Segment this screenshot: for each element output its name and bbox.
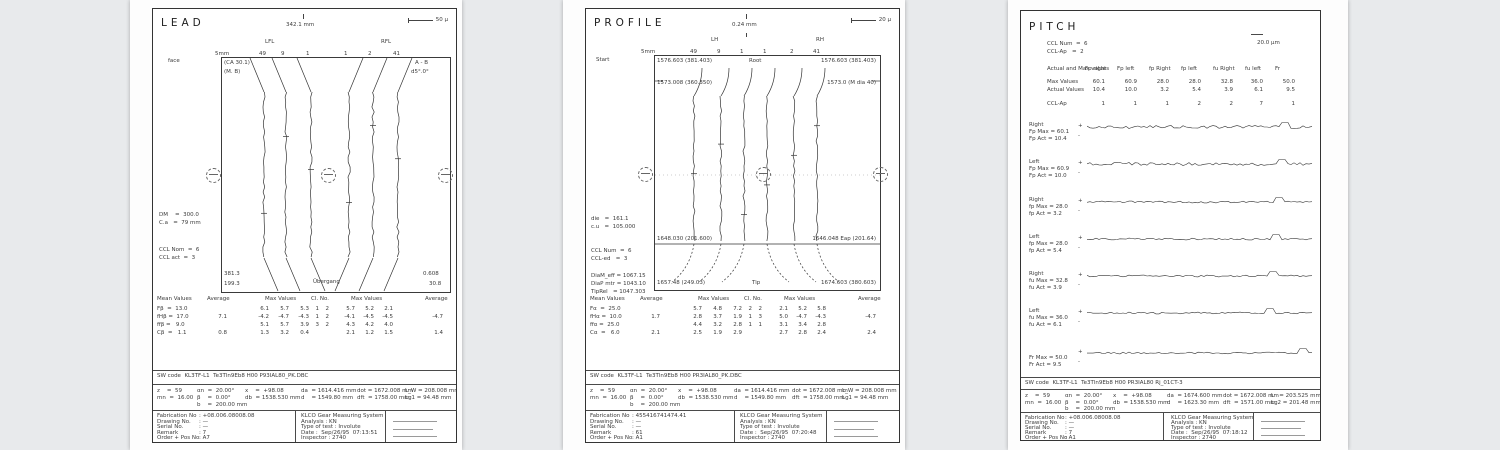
table-cell: 4.0 bbox=[375, 322, 393, 329]
text-line: C.a = 79 mm bbox=[159, 220, 201, 227]
divider bbox=[295, 410, 296, 442]
plus-tick: + bbox=[1078, 309, 1083, 316]
profile-report-frame: PROFILE 0.24 mm 20 μ LH RH 5mm Start 49 … bbox=[585, 8, 900, 443]
text-line: Serial No. bbox=[590, 424, 616, 431]
table-header: Max Values bbox=[351, 296, 382, 303]
text-line: Remark bbox=[1025, 430, 1046, 437]
text-line: die = 161.1 bbox=[591, 216, 629, 223]
text-line: Drawing No. bbox=[590, 419, 624, 426]
row-item: fu left bbox=[1245, 66, 1261, 73]
table-cell: 3.9 bbox=[1209, 87, 1233, 94]
table-cell: 2 bbox=[1209, 101, 1233, 108]
table-cell: 2.1 bbox=[638, 330, 660, 337]
dimension-tick bbox=[746, 33, 747, 37]
row-item: mn = 16.00 bbox=[590, 395, 626, 402]
table-cell: 5.4 bbox=[1177, 87, 1201, 94]
table-header: Average bbox=[640, 296, 663, 303]
table-cell: 9.5 bbox=[1271, 87, 1295, 94]
table-cell: 50.0 bbox=[1271, 79, 1295, 86]
row-item: Fr bbox=[1275, 66, 1280, 73]
signature-line bbox=[834, 429, 874, 430]
table-cell: Cβ = 1.1 bbox=[157, 330, 217, 337]
table-cell: 1.9 bbox=[704, 330, 722, 337]
row-item: x = +98.08 bbox=[245, 388, 284, 395]
row-item: dft = 1571.00 mm bbox=[1223, 400, 1276, 407]
section-side: Left bbox=[1029, 234, 1039, 241]
software-path: SW code KL3TF-L1 Te3Tln9Eb8 H00 PR3IAL80… bbox=[1025, 380, 1183, 387]
chart-label: 1576.603 (381.403) bbox=[806, 58, 876, 65]
dimension-label: 0.24 mm bbox=[732, 22, 757, 29]
row-item: db = 1538.530 mm bbox=[245, 395, 301, 402]
chart-label: Tip bbox=[752, 280, 760, 287]
divider bbox=[1021, 412, 1320, 413]
chart-label: 199.3 bbox=[224, 281, 240, 288]
table-cell: 28.0 bbox=[1177, 79, 1201, 86]
text-line: Analysis : KN bbox=[1171, 420, 1207, 427]
table-cell: 1.7 bbox=[638, 314, 660, 321]
divider bbox=[1253, 412, 1254, 440]
chart-label: 1648.030 (201.600) bbox=[657, 236, 712, 243]
plus-tick: + bbox=[1078, 349, 1083, 356]
table-cell: 28.0 bbox=[1145, 79, 1169, 86]
signature-line bbox=[1261, 421, 1305, 422]
chart-label: 30.8 bbox=[429, 281, 441, 288]
software-path: SW code KL3TF-L1 Te3Tln9Eb8 H00 P93IAL80… bbox=[157, 373, 308, 380]
table-cell: 3.2 bbox=[1145, 87, 1169, 94]
datum-circle-icon bbox=[756, 167, 771, 182]
text-line: : A1 bbox=[1065, 435, 1076, 441]
text-line: c.u = 105.000 bbox=[591, 224, 635, 231]
row-item: da = 1674.600 mm bbox=[1167, 393, 1222, 400]
divider bbox=[826, 410, 827, 442]
table-cell: 1.9 bbox=[724, 314, 742, 321]
table-cell: 1 bbox=[752, 322, 762, 329]
table-cell: 1.5 bbox=[375, 330, 393, 337]
row-item: z = 59 bbox=[157, 388, 182, 395]
datum-circle-icon bbox=[638, 167, 653, 182]
pitch-traces bbox=[1087, 116, 1315, 366]
table-cell: 2 bbox=[319, 306, 329, 313]
text-line: DM = 300.0 bbox=[159, 212, 199, 219]
row-item: db = 1538.530 mm bbox=[1113, 400, 1169, 407]
table-cell: Actual Values bbox=[1047, 87, 1091, 94]
divider bbox=[586, 410, 899, 411]
table-cell: 36.0 bbox=[1239, 79, 1263, 86]
table-cell: 2.1 bbox=[337, 330, 355, 337]
chart-label: A - B bbox=[415, 60, 428, 67]
row-item: mn = 16.00 bbox=[1025, 400, 1061, 407]
table-cell: 2.4 bbox=[854, 330, 876, 337]
table-cell: 4.3 bbox=[337, 322, 355, 329]
text-line: KLCO Gear Measuring System bbox=[301, 413, 384, 420]
row-item: mn = 16.00 bbox=[157, 395, 193, 402]
scale-marker: 20 μ bbox=[852, 17, 891, 24]
signature-line bbox=[393, 421, 437, 422]
page-title: PITCH bbox=[1029, 21, 1079, 34]
text-line: Remark bbox=[157, 430, 178, 437]
minus-tick: - bbox=[1078, 170, 1080, 177]
text-line: : 61 bbox=[632, 430, 643, 437]
row-item: fp left bbox=[1181, 66, 1197, 73]
table-header: Max Values bbox=[784, 296, 815, 303]
row-item: Fp left bbox=[1117, 66, 1134, 73]
table-header: Cl. No. bbox=[744, 296, 762, 303]
row-item: αn = 20.00° bbox=[630, 388, 667, 395]
table-cell: 2 bbox=[319, 322, 329, 329]
row-item: da = 1614.416 mm bbox=[734, 388, 789, 395]
table-cell: 3.4 bbox=[789, 322, 807, 329]
datum-circle-icon bbox=[206, 168, 221, 183]
table-cell: -4.7 bbox=[854, 314, 876, 321]
text-line: TipRel = 1047.303 bbox=[591, 289, 646, 296]
table-cell: 10.4 bbox=[1081, 87, 1105, 94]
table-cell: 7 bbox=[1239, 101, 1263, 108]
software-path: SW code KL3TF-L1 Te3Tln9Eb8 H00 PR3IAL80… bbox=[590, 373, 742, 380]
row-item: αn = 20.00° bbox=[197, 388, 234, 395]
table-cell: fHβ = 17.0 bbox=[157, 314, 217, 321]
text-line: CCL-Ap = 2 bbox=[1047, 49, 1084, 56]
text-line: : 455416741474.41 bbox=[632, 413, 686, 420]
table-cell: 0.8 bbox=[205, 330, 227, 337]
table-cell: 5.7 bbox=[337, 306, 355, 313]
divider bbox=[1163, 412, 1164, 440]
chart-label: 0.608 bbox=[423, 271, 439, 278]
signature-line bbox=[834, 421, 878, 422]
section-act: Fp Act = 10.4 bbox=[1029, 136, 1067, 143]
table-cell: 5.7 bbox=[684, 306, 702, 313]
table-cell: fHα = 10.0 bbox=[590, 314, 650, 321]
row-item: Lg1 = 94.48 mm bbox=[405, 395, 451, 402]
row-item: Lg1 = 94.48 mm bbox=[842, 395, 888, 402]
text-line: Date : Sep/26/95 07:18:12 bbox=[1171, 430, 1248, 437]
table-header: Average bbox=[207, 296, 230, 303]
divider bbox=[586, 370, 899, 371]
section-act: fp Act = 3.2 bbox=[1029, 211, 1062, 218]
table-cell: 1.2 bbox=[356, 330, 374, 337]
text-line: CCL Num = 6 bbox=[1047, 41, 1088, 48]
pitch-report-page: PITCH CCL Num = 6CCL-Ap = 2 20.0 μm Actu… bbox=[1008, 0, 1348, 450]
section-side: Left bbox=[1029, 159, 1039, 166]
plus-tick: + bbox=[1078, 123, 1083, 130]
section-side: Right bbox=[1029, 271, 1043, 278]
table-cell: ffα = 25.0 bbox=[590, 322, 650, 329]
chart-label: d5°.0° bbox=[411, 69, 429, 76]
section-max: fp Max = 28.0 bbox=[1029, 204, 1068, 211]
chart-label: (M. B) bbox=[224, 69, 240, 76]
section-side: Left bbox=[1029, 308, 1039, 315]
text-line: Date : Sep/26/95 07:13:51 bbox=[301, 430, 378, 437]
table-cell: -4.2 bbox=[251, 314, 269, 321]
table-cell: 60.9 bbox=[1113, 79, 1137, 86]
table-cell: 6.1 bbox=[1239, 87, 1263, 94]
table-cell: 1 bbox=[1145, 101, 1169, 108]
table-cell: 5.2 bbox=[356, 306, 374, 313]
row-item: L = 203.525 mm bbox=[1271, 393, 1321, 400]
text-line: KLCO Gear Measuring System bbox=[740, 413, 823, 420]
text-line: Type of test : Involute bbox=[740, 424, 800, 431]
row-item: d = 1549.80 mm bbox=[734, 395, 786, 402]
lead-report-page: LEAD 342.1 mm 50 μ LFL RFL 5mm face 49 9… bbox=[130, 0, 462, 450]
table-header: Mean Values bbox=[157, 296, 192, 303]
scale-bar-icon bbox=[409, 20, 433, 21]
row-item: L_W = 208.008 mm bbox=[405, 388, 457, 395]
text-line: : +08.006.08008.08 bbox=[199, 413, 254, 420]
row-item: dot = 1672.008 mm bbox=[792, 388, 848, 395]
table-cell: 2 bbox=[742, 306, 752, 313]
table-cell: 2.7 bbox=[770, 330, 788, 337]
lead-report-frame: LEAD 342.1 mm 50 μ LFL RFL 5mm face 49 9… bbox=[152, 8, 457, 443]
section-act: fu Act = 6.1 bbox=[1029, 322, 1062, 329]
row-item: dot = 1672.008 mm bbox=[1223, 393, 1279, 400]
scale-marker: 50 μ bbox=[409, 17, 448, 24]
table-cell: -4.3 bbox=[291, 314, 309, 321]
minus-tick: - bbox=[1078, 282, 1080, 289]
table-cell: -4.7 bbox=[271, 314, 289, 321]
minus-tick: - bbox=[1078, 208, 1080, 215]
divider bbox=[1021, 389, 1320, 390]
text-line: DiaP mtr = 1043.10 bbox=[591, 281, 646, 288]
table-cell: 2.8 bbox=[684, 314, 702, 321]
plus-tick: + bbox=[1078, 235, 1083, 242]
row-item: fu Right bbox=[1213, 66, 1235, 73]
table-cell: CCL-Ap bbox=[1047, 101, 1091, 108]
table-cell: 3.9 bbox=[291, 322, 309, 329]
text-line: Fabrication No bbox=[1025, 415, 1064, 422]
text-line: : — bbox=[1065, 420, 1074, 427]
text-line: Drawing No. bbox=[157, 419, 191, 426]
table-cell: 2 bbox=[319, 314, 329, 321]
row-item: b = 200.00 mm bbox=[630, 402, 680, 409]
table-cell: 5.2 bbox=[789, 306, 807, 313]
divider bbox=[153, 384, 456, 385]
table-cell: 1.4 bbox=[421, 330, 443, 337]
table-header: Max Values bbox=[698, 296, 729, 303]
table-cell: 2.8 bbox=[789, 330, 807, 337]
text-line: Serial No. bbox=[157, 424, 183, 431]
text-line: Type of test : Involute bbox=[301, 424, 361, 431]
table-cell: 2.4 bbox=[808, 330, 826, 337]
text-line: Fabrication No bbox=[157, 413, 196, 420]
row-item: L_W = 208.008 mm bbox=[842, 388, 897, 395]
section-side: Right bbox=[1029, 197, 1043, 204]
divider bbox=[734, 410, 735, 442]
pitch-table-corner: Actual and Max values bbox=[1047, 66, 1109, 73]
section-max: Fp Max = 60.1 bbox=[1029, 129, 1069, 136]
chart-label: 1573.008 (360.350) bbox=[657, 80, 712, 87]
row-item: dft = 1758.00 mm bbox=[792, 395, 845, 402]
table-cell: -4.3 bbox=[808, 314, 826, 321]
row-item: αn = 20.00° bbox=[1065, 393, 1102, 400]
divider bbox=[586, 384, 899, 385]
section-act: fu Act = 3.9 bbox=[1029, 285, 1062, 292]
table-cell: 2.8 bbox=[808, 322, 826, 329]
chart-label: 1576.603 (381.403) bbox=[657, 58, 712, 65]
text-line: Type of test : Involute bbox=[1171, 425, 1231, 432]
scale-bar-icon bbox=[852, 20, 876, 21]
section-act: Fp Act = 10.0 bbox=[1029, 173, 1067, 180]
table-cell: -4.5 bbox=[356, 314, 374, 321]
right-flank-label: RFL bbox=[381, 39, 391, 46]
text-line: Order + Pos No bbox=[1025, 435, 1067, 441]
text-line: CCL act = 3 bbox=[159, 255, 195, 262]
table-cell: -4.7 bbox=[421, 314, 443, 321]
dimension-tick bbox=[303, 14, 304, 19]
chart-label: 1646.048 Eap (201.64) bbox=[801, 236, 876, 243]
chart-label: 1573.0 (M dia 40) bbox=[816, 80, 876, 87]
lead-chart bbox=[221, 57, 451, 293]
text-line: DiaM_eff = 1067.15 bbox=[591, 273, 646, 280]
table-cell: 32.8 bbox=[1209, 79, 1233, 86]
divider bbox=[385, 410, 386, 442]
plus-tick: + bbox=[1078, 272, 1083, 279]
table-cell: 1 bbox=[742, 322, 752, 329]
datum-circle-icon bbox=[873, 167, 888, 182]
chart-label: 1674.603 (380.603) bbox=[806, 280, 876, 287]
divider bbox=[153, 410, 456, 411]
row-item: Lg2 = 201.48 mm bbox=[1271, 400, 1321, 407]
divider bbox=[1021, 377, 1320, 378]
scale-tick bbox=[1251, 34, 1263, 35]
row-item: β = 0.00° bbox=[197, 395, 231, 402]
table-cell: Cα = 6.0 bbox=[590, 330, 650, 337]
table-cell: 5.7 bbox=[271, 306, 289, 313]
minus-tick: - bbox=[1078, 359, 1080, 366]
plus-tick: + bbox=[1078, 160, 1083, 167]
table-header: Average bbox=[425, 296, 448, 303]
table-cell: 7.1 bbox=[205, 314, 227, 321]
minus-tick: - bbox=[1078, 319, 1080, 326]
section-max: fu Max = 36.0 bbox=[1029, 315, 1068, 322]
table-header: Mean Values bbox=[590, 296, 625, 303]
table-cell: 3.1 bbox=[770, 322, 788, 329]
table-cell: 1 bbox=[1113, 101, 1137, 108]
row-item: x = +98.08 bbox=[1113, 393, 1152, 400]
row-item: b = 200.00 mm bbox=[197, 402, 247, 409]
table-cell: 1 bbox=[1271, 101, 1295, 108]
scale-label: 20 μ bbox=[879, 17, 891, 24]
row-item: dot = 1672.008 mm bbox=[357, 388, 413, 395]
table-cell: Fβ = 13.0 bbox=[157, 306, 217, 313]
table-cell: 6.1 bbox=[251, 306, 269, 313]
text-line: CCL Num = 6 bbox=[591, 248, 632, 255]
row-item: z = 59 bbox=[1025, 393, 1050, 400]
row-item: da = 1614.416 mm bbox=[301, 388, 356, 395]
text-line: Analysis : KN bbox=[301, 419, 337, 426]
row-item: x = +98.08 bbox=[678, 388, 717, 395]
section-max: Fp Max = 60.9 bbox=[1029, 166, 1069, 173]
table-cell: 2 bbox=[1177, 101, 1201, 108]
text-line: Analysis : KN bbox=[740, 419, 776, 426]
signature-line bbox=[834, 436, 878, 437]
chart-label: 1657.48 (249.03) bbox=[657, 280, 705, 287]
section-max: fp Max = 28.0 bbox=[1029, 241, 1068, 248]
chart-label: 381.3 bbox=[224, 271, 240, 278]
table-cell: 1 bbox=[742, 314, 752, 321]
dimension-tick bbox=[746, 14, 747, 19]
table-cell: 3 bbox=[752, 314, 762, 321]
table-header: Cl. No. bbox=[311, 296, 329, 303]
text-line: : 7 bbox=[1065, 430, 1072, 437]
table-cell: 3.2 bbox=[271, 330, 289, 337]
table-cell: 60.1 bbox=[1081, 79, 1105, 86]
text-line: Inspector : 2740 bbox=[1171, 435, 1216, 441]
left-flank-label: LH bbox=[711, 37, 718, 44]
table-header: Average bbox=[858, 296, 881, 303]
text-line: Fabrication No bbox=[590, 413, 629, 420]
table-cell: 7.2 bbox=[724, 306, 742, 313]
row-item: dft = 1758.00 mm bbox=[357, 395, 410, 402]
text-line: CCL Nom = 6 bbox=[159, 247, 199, 254]
table-cell: 5.1 bbox=[251, 322, 269, 329]
text-line: KLCO Gear Measuring System bbox=[1171, 415, 1254, 422]
right-flank-label: RH bbox=[816, 37, 824, 44]
table-cell: 1 bbox=[309, 314, 319, 321]
section-side: Right bbox=[1029, 122, 1043, 129]
text-line: Serial No. bbox=[1025, 425, 1051, 432]
signature-line bbox=[393, 436, 437, 437]
table-cell: 1 bbox=[309, 306, 319, 313]
chart-label: (CA 30.1) bbox=[224, 60, 250, 67]
table-cell: 2.9 bbox=[724, 330, 742, 337]
table-cell: 2.1 bbox=[375, 306, 393, 313]
row-item: d = 1549.80 mm bbox=[301, 395, 353, 402]
table-cell: Fα = 25.0 bbox=[590, 306, 650, 313]
table-cell: 2.5 bbox=[684, 330, 702, 337]
plus-tick: + bbox=[1078, 198, 1083, 205]
scale-label: 50 μ bbox=[436, 17, 448, 24]
text-line: : 7 bbox=[199, 430, 206, 437]
minus-tick: - bbox=[1078, 133, 1080, 140]
table-cell: 2.1 bbox=[770, 306, 788, 313]
text-line: Inspector : 2740 bbox=[301, 435, 346, 442]
table-cell: 4.4 bbox=[684, 322, 702, 329]
section-max: fu Max = 32.8 bbox=[1029, 278, 1068, 285]
table-header: Max Values bbox=[265, 296, 296, 303]
page-title: PROFILE bbox=[594, 17, 666, 30]
text-line: Order + Pos No bbox=[157, 435, 199, 442]
text-line: : — bbox=[632, 419, 641, 426]
section-max: Fr Max = 50.0 bbox=[1029, 355, 1068, 362]
table-cell: 4.2 bbox=[356, 322, 374, 329]
text-line: : — bbox=[632, 424, 641, 431]
text-line: : A7 bbox=[199, 435, 210, 442]
table-cell: 2 bbox=[752, 306, 762, 313]
left-flank-label: LFL bbox=[265, 39, 274, 46]
table-cell: -4.5 bbox=[375, 314, 393, 321]
pitch-report-frame: PITCH CCL Num = 6CCL-Ap = 2 20.0 μm Actu… bbox=[1020, 10, 1321, 441]
datum-circle-icon bbox=[321, 168, 336, 183]
minus-tick: - bbox=[1078, 245, 1080, 252]
text-line: : — bbox=[199, 419, 208, 426]
text-line: Drawing No. bbox=[1025, 420, 1059, 427]
divider bbox=[153, 370, 456, 371]
signature-line bbox=[1261, 428, 1301, 429]
row-item: fp Right bbox=[1149, 66, 1171, 73]
table-cell: 5.8 bbox=[808, 306, 826, 313]
axis-note: face bbox=[168, 58, 180, 65]
text-line: : +08.006.08008.08 bbox=[1065, 415, 1120, 422]
chart-label: Übergang bbox=[313, 279, 340, 286]
table-cell: 2.8 bbox=[724, 322, 742, 329]
text-line: Inspector : 2740 bbox=[740, 435, 785, 442]
page-title: LEAD bbox=[161, 17, 205, 30]
table-cell: 3 bbox=[309, 322, 319, 329]
row-item: z = 59 bbox=[590, 388, 615, 395]
signature-line bbox=[393, 429, 433, 430]
text-line: : A1 bbox=[632, 435, 643, 442]
row-item: d = 1623.30 mm bbox=[1167, 400, 1219, 407]
table-cell: 1.3 bbox=[251, 330, 269, 337]
